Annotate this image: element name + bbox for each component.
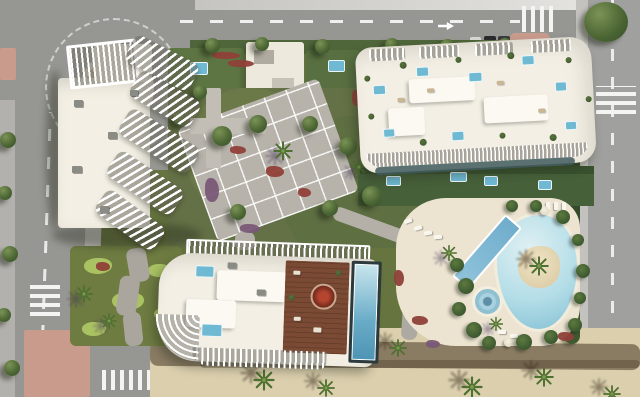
pool-bush: [530, 200, 542, 212]
lagoon-island: [518, 246, 560, 288]
flower-bed-red: [212, 52, 240, 59]
roof-unit: [74, 100, 83, 107]
building-c-wood-deck: [283, 260, 350, 354]
palm-tree: [460, 375, 484, 397]
crosswalk-left-road: [30, 284, 60, 316]
annex-roof-patch: [272, 78, 294, 94]
rooftop-plunge-pool: [416, 66, 430, 77]
pool-bush: [452, 302, 466, 316]
tree: [212, 126, 232, 146]
building-b-top-pergola: [369, 48, 406, 62]
rooftop-plunge-pool: [555, 81, 568, 92]
pool-bush: [450, 258, 464, 272]
tree: [339, 137, 357, 155]
pool-bush: [556, 210, 570, 224]
flower-bed-red: [266, 166, 284, 177]
tree: [362, 186, 382, 206]
deck-plant: [288, 294, 294, 300]
pool-bush: [458, 278, 474, 294]
building-a: [56, 40, 206, 240]
crosswalk-right-road: [596, 86, 636, 114]
building-c-lap-pool: [348, 261, 382, 364]
tree: [230, 204, 246, 220]
rooftop-plunge-pool: [521, 55, 535, 66]
left-road-west-sidewalk: [0, 100, 15, 397]
screenshot-canvas: [0, 0, 640, 412]
palm-tree: [272, 140, 294, 162]
rooftop-plunge-pool: [565, 121, 577, 131]
building-c-curved-balcony: [154, 314, 200, 362]
deck-fire-lounge: [310, 283, 337, 310]
deck-furniture: [294, 317, 301, 321]
sun-lounger: [546, 202, 550, 210]
sun-lounger: [414, 225, 423, 231]
lap-pool: [452, 214, 522, 290]
sun-lounger: [434, 235, 442, 240]
top-road-sidewalk: [195, 0, 640, 10]
building-b: [355, 36, 598, 180]
path-east-of-building-c: [401, 245, 424, 341]
pool-bush: [506, 200, 518, 212]
bottom-letterbox: [0, 397, 640, 412]
rooftop-plunge-pool: [195, 265, 214, 278]
roof-unit: [130, 90, 138, 96]
top-road-lane-dashes: [180, 20, 520, 23]
roof-unit: [108, 132, 117, 139]
flower-bed-purple: [240, 224, 260, 233]
rooftop-plunge-pool: [201, 323, 222, 337]
top-center-building: [246, 42, 304, 112]
private-garden-pool: [484, 176, 498, 186]
lagoon-pool: [494, 212, 580, 332]
rooftop-plunge-pool: [468, 72, 483, 83]
crosswalk-top-road: [522, 6, 554, 32]
tree-top-right-corner: [584, 2, 628, 42]
flower-bed-red: [230, 146, 246, 154]
rooftop-plunge-pool: [451, 131, 465, 142]
garden-pool: [328, 60, 345, 72]
deck-plant: [335, 270, 341, 276]
plaza-cross-path-v: [206, 88, 221, 168]
tree: [432, 204, 448, 220]
crosswalk-bottom-left-upper: [96, 300, 140, 316]
palm-tree: [602, 384, 622, 397]
palm-tree: [533, 366, 555, 388]
flower-bed-red: [298, 188, 311, 197]
sun-lounger: [404, 218, 413, 224]
rooftop-plunge-pool: [373, 85, 387, 96]
lawn-top-center: [306, 50, 360, 114]
annex-pergola: [250, 96, 290, 106]
flower-bed-red: [412, 316, 428, 325]
pink-sidewalk-bottom-left: [24, 330, 90, 397]
private-garden-pool: [538, 180, 552, 190]
terrace-furniture: [538, 108, 545, 112]
aerial-render-scene: [0, 0, 640, 397]
flower-bed-red: [394, 270, 404, 286]
building-c: [154, 238, 397, 386]
terrace-furniture: [397, 98, 404, 102]
building-b-top-pergola: [531, 39, 572, 53]
sun-lounger: [424, 230, 433, 235]
palm-tree: [440, 244, 458, 262]
flower-bed-red: [228, 60, 254, 67]
golf-path: [125, 247, 151, 284]
sun-lounger: [554, 202, 558, 210]
pink-sidewalk-left-top: [0, 48, 16, 80]
building-c-roof-slab: [216, 270, 287, 302]
tree: [302, 116, 318, 132]
deck-furniture: [313, 327, 321, 332]
terrace-furniture: [427, 88, 434, 92]
rooftop-plunge-pool: [383, 128, 395, 138]
pool-deck: [396, 198, 580, 346]
roof-unit: [72, 166, 82, 173]
annex-roof-patch: [254, 50, 274, 64]
terrace-furniture: [497, 81, 504, 85]
deck-furniture: [293, 271, 300, 275]
building-b-roof-slab: [408, 76, 475, 103]
parasol: [540, 206, 549, 215]
island-palm-tree: [528, 255, 550, 277]
tree: [322, 200, 338, 216]
building-b-top-pergola: [419, 45, 460, 59]
flower-bed-purple: [205, 178, 219, 202]
roof-unit: [257, 289, 266, 295]
sun-lounger: [562, 202, 566, 210]
building-c-bottom-balconies: [190, 347, 327, 370]
roof-unit: [227, 262, 236, 268]
tree: [249, 115, 267, 133]
roof-unit: [100, 206, 109, 213]
spa-pool: [472, 286, 503, 317]
